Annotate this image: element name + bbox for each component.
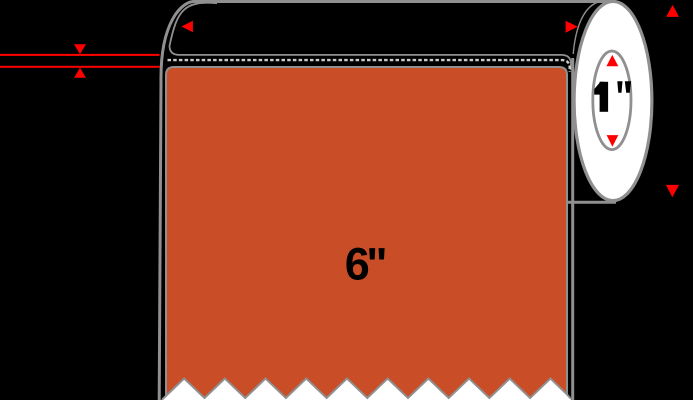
svg-text:": " [366,238,387,289]
